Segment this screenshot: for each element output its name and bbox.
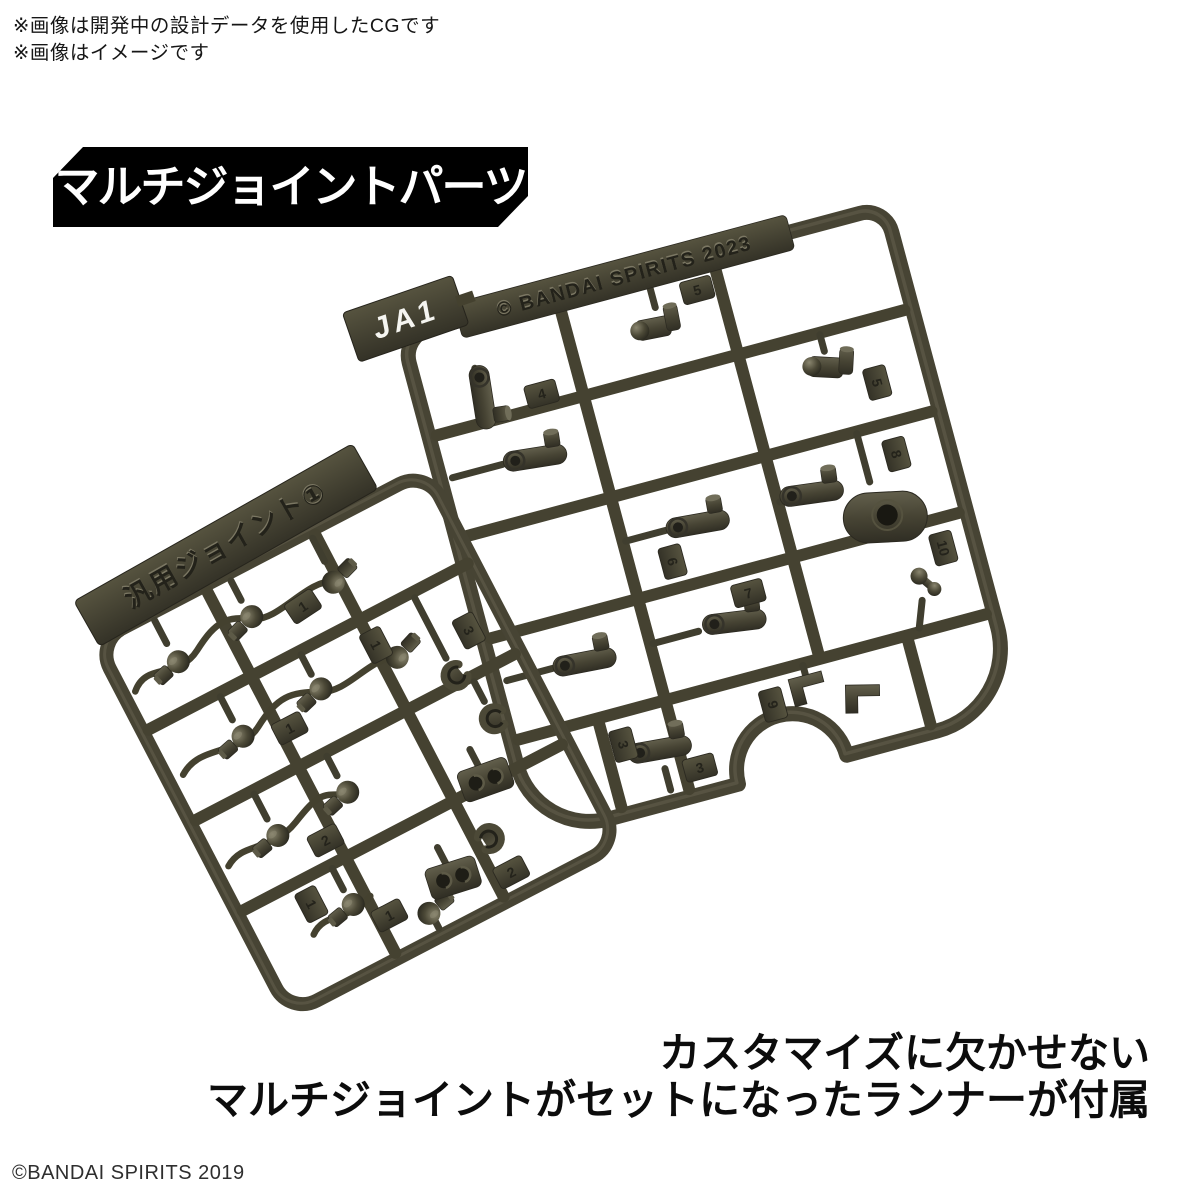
joint-part-double-clip: [456, 756, 516, 804]
part-number-tag: 8: [881, 436, 911, 473]
caption-line-1: カスタマイズに欠かせない: [207, 1030, 1150, 1077]
joint-part-ball: [247, 819, 294, 863]
joint-part-link: [548, 630, 618, 678]
joint-part-bracket: [788, 671, 828, 707]
joint-part-ball-link: [907, 564, 945, 600]
part-number-tag: 7: [730, 578, 767, 608]
joint-part-ball: [213, 720, 259, 765]
part-number-tag: 5: [862, 364, 892, 401]
joint-part-double-clip: [424, 855, 483, 901]
copyright-footer: ©BANDAI SPIRITS 2019: [12, 1162, 245, 1185]
joint-part-oval-plate: [842, 490, 929, 544]
joint-part-bracket: [845, 685, 879, 714]
caption-line-2: マルチジョイントがセットになったランナーが付属: [207, 1077, 1150, 1124]
joint-part-link: [662, 493, 731, 540]
joint-part-link: [776, 463, 844, 508]
joint-part-link: [499, 427, 568, 473]
part-number-tag: 10: [928, 530, 958, 567]
joint-part-ball: [148, 645, 194, 690]
joint-part-universal: [802, 344, 854, 379]
product-render-svg: © BANDAI SPIRITS 2023 © BANDAI SPIRITS 2…: [0, 0, 1200, 1200]
marketing-caption: カスタマイズに欠かせない マルチジョイントがセットになったランナーが付属: [207, 1030, 1150, 1124]
part-number-tag: 1: [283, 588, 322, 625]
part-number-tag: 6: [657, 543, 687, 580]
part-number-tag: 3: [681, 752, 718, 782]
part-number-tag: 1: [294, 885, 329, 924]
left-runner: 汎用ジョイント① 汎用ジョイント① 1 1 1 2 1 2 3 1: [68, 419, 620, 1015]
